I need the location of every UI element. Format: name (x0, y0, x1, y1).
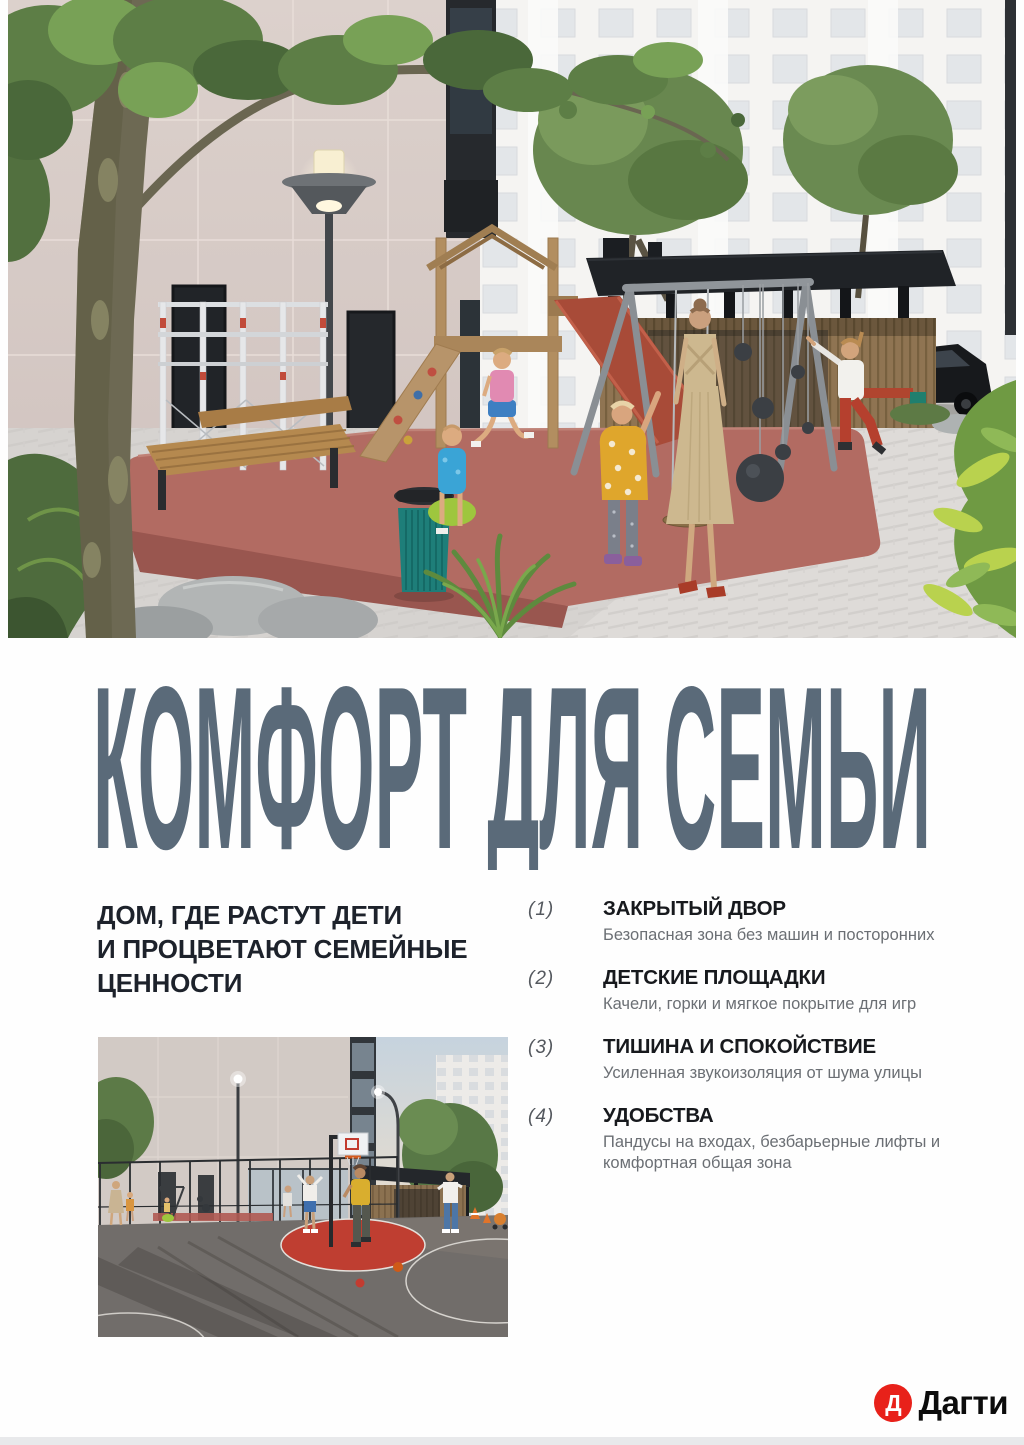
feature-title: ЗАКРЫТЫЙ ДВОР (603, 897, 985, 921)
subheadline-line: ЦЕННОСТИ (97, 966, 517, 1000)
brand-logo-icon: Д (874, 1384, 912, 1422)
feature-description: Усиленная звукоизоляция от шума улицы (603, 1063, 985, 1084)
feature-item-playgrounds: (2) ДЕТСКИЕ ПЛОЩАДКИ Качели, горки и мяг… (528, 966, 948, 1015)
headline: КОМФОРТ ДЛЯ СЕМЬИ (92, 678, 934, 870)
brochure-page: КОМФОРТ ДЛЯ СЕМЬИ ДОМ, ГДЕ РАСТУТ ДЕТИ И… (0, 0, 1024, 1445)
feature-description: Качели, горки и мягкое покрытие для игр (603, 994, 985, 1015)
feature-item-quiet: (3) ТИШИНА И СПОКОЙСТВИЕ Усиленная звуко… (528, 1035, 948, 1084)
feature-title: УДОБСТВА (603, 1104, 985, 1128)
brand-logo-name: Дагти (918, 1384, 1008, 1422)
feature-item-amenities: (4) УДОБСТВА Пандусы на входах, безбарье… (528, 1104, 948, 1174)
feature-number: (3) (528, 1035, 603, 1084)
feature-description: Безопасная зона без машин и посторонних (603, 925, 985, 946)
subheadline-line: И ПРОЦВЕТАЮТ СЕМЕЙНЫЕ (97, 932, 517, 966)
features-list: (1) ЗАКРЫТЫЙ ДВОР Безопасная зона без ма… (528, 897, 948, 1194)
feature-number: (4) (528, 1104, 603, 1174)
brand-logo-letter: Д (885, 1390, 901, 1417)
page-bottom-edge (0, 1437, 1024, 1445)
brand-logo[interactable]: Д Дагти (874, 1384, 1008, 1422)
hero-illustration (8, 0, 1016, 638)
court-illustration (98, 1037, 508, 1337)
feature-number: (2) (528, 966, 603, 1015)
feature-number: (1) (528, 897, 603, 946)
feature-description: Пандусы на входах, безбарьерные лифты и … (603, 1132, 985, 1174)
feature-title: ТИШИНА И СПОКОЙСТВИЕ (603, 1035, 985, 1059)
edge-pole (1005, 0, 1016, 335)
headline-text: КОМФОРТ ДЛЯ СЕМЬИ (93, 678, 931, 870)
hero-image (8, 0, 1016, 638)
basketball-court-image (98, 1037, 508, 1337)
feature-title: ДЕТСКИЕ ПЛОЩАДКИ (603, 966, 985, 990)
subheadline: ДОМ, ГДЕ РАСТУТ ДЕТИ И ПРОЦВЕТАЮТ СЕМЕЙН… (97, 898, 517, 1000)
feature-item-closed-yard: (1) ЗАКРЫТЫЙ ДВОР Безопасная зона без ма… (528, 897, 948, 946)
subheadline-line: ДОМ, ГДЕ РАСТУТ ДЕТИ (97, 898, 517, 932)
